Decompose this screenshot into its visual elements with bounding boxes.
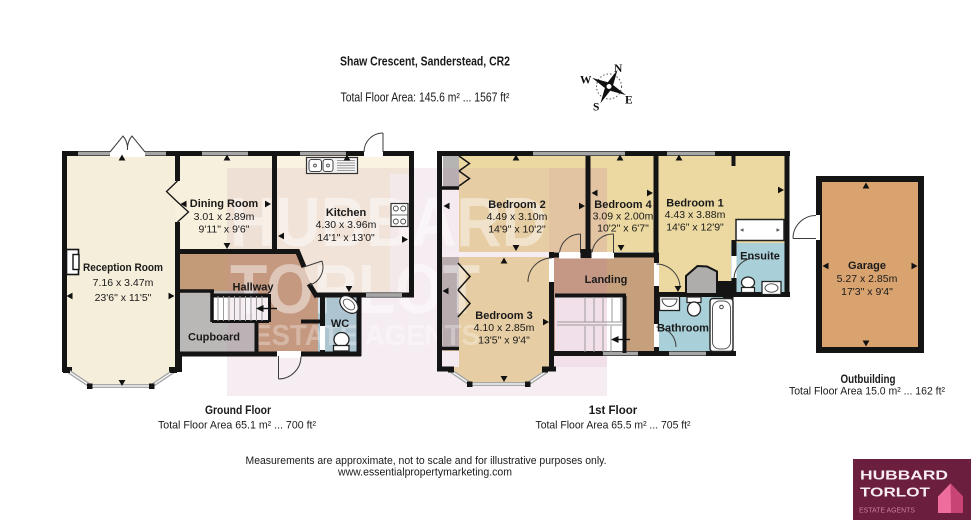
- svg-text:Outbuilding: Outbuilding: [841, 374, 896, 386]
- svg-text:4.43 x 3.88m: 4.43 x 3.88m: [665, 209, 726, 221]
- svg-text:Garage: Garage: [848, 260, 886, 272]
- svg-text:10'2" x 6'7": 10'2" x 6'7": [597, 223, 649, 235]
- svg-text:Bathroom: Bathroom: [657, 323, 709, 335]
- svg-text:Cupboard: Cupboard: [188, 332, 240, 344]
- svg-text:14'9" x 10'2": 14'9" x 10'2": [488, 224, 546, 236]
- svg-text:Bedroom 2: Bedroom 2: [488, 199, 545, 211]
- svg-text:1st Floor: 1st Floor: [589, 405, 638, 417]
- svg-text:S: S: [593, 102, 599, 114]
- svg-text:TORLOT: TORLOT: [860, 485, 930, 500]
- svg-text:HUBBARD: HUBBARD: [860, 468, 948, 483]
- svg-text:Ground Floor: Ground Floor: [205, 405, 271, 417]
- svg-text:Bedroom 1: Bedroom 1: [666, 198, 723, 210]
- svg-text:N: N: [614, 63, 623, 75]
- svg-text:14'6" x 12'9": 14'6" x 12'9": [666, 222, 724, 234]
- svg-text:Total Floor Area 65.1 m² ... 7: Total Floor Area 65.1 m² ... 700 ft²: [158, 420, 316, 432]
- svg-text:14'1" x 13'0": 14'1" x 13'0": [317, 232, 375, 244]
- svg-text:4.49 x 3.10m: 4.49 x 3.10m: [487, 211, 548, 223]
- svg-text:Shaw Crescent, Sanderstead, CR: Shaw Crescent, Sanderstead, CR2: [340, 54, 510, 69]
- svg-text:Reception Room: Reception Room: [83, 262, 163, 274]
- svg-text:Total Floor Area 15.0 m² ... 1: Total Floor Area 15.0 m² ... 162 ft²: [789, 386, 945, 398]
- svg-text:ESTATE AGENTS: ESTATE AGENTS: [859, 506, 915, 515]
- svg-text:Total Floor Area 65.5 m² ... 7: Total Floor Area 65.5 m² ... 705 ft²: [536, 420, 691, 432]
- svg-text:3.01 x 2.89m: 3.01 x 2.89m: [194, 211, 255, 223]
- svg-text:Bedroom 3: Bedroom 3: [475, 310, 532, 322]
- svg-text:Landing: Landing: [585, 274, 628, 286]
- svg-text:23'6" x 11'5": 23'6" x 11'5": [95, 292, 152, 304]
- svg-text:Bedroom 4: Bedroom 4: [594, 199, 652, 211]
- svg-text:www.essentialpropertymarketing: www.essentialpropertymarketing.com: [337, 467, 512, 479]
- svg-text:7.16 x 3.47m: 7.16 x 3.47m: [93, 277, 154, 289]
- svg-text:Dining Room: Dining Room: [190, 198, 259, 210]
- svg-text:E: E: [625, 95, 633, 107]
- svg-text:Hallway: Hallway: [233, 282, 275, 294]
- svg-text:Measurements are approximate,: Measurements are approximate, not to sca…: [246, 455, 607, 467]
- svg-text:Kitchen: Kitchen: [326, 207, 367, 219]
- svg-text:4.30 x 3.96m: 4.30 x 3.96m: [316, 219, 377, 231]
- svg-text:5.27 x 2.85m: 5.27 x 2.85m: [837, 273, 898, 285]
- svg-text:W: W: [580, 75, 592, 87]
- svg-text:9'11" x 9'6": 9'11" x 9'6": [199, 224, 250, 236]
- svg-text:WC: WC: [331, 318, 349, 330]
- svg-text:Ensuite: Ensuite: [740, 251, 780, 263]
- svg-text:4.10 x 2.85m: 4.10 x 2.85m: [474, 322, 535, 334]
- svg-text:17'3" x 9'4": 17'3" x 9'4": [841, 286, 893, 298]
- svg-text:3.09 x 2.00m: 3.09 x 2.00m: [593, 211, 654, 223]
- svg-text:Total Floor Area: 145.6 m² ...: Total Floor Area: 145.6 m² ... 1567 ft²: [341, 91, 510, 105]
- svg-text:13'5" x 9'4": 13'5" x 9'4": [478, 335, 530, 347]
